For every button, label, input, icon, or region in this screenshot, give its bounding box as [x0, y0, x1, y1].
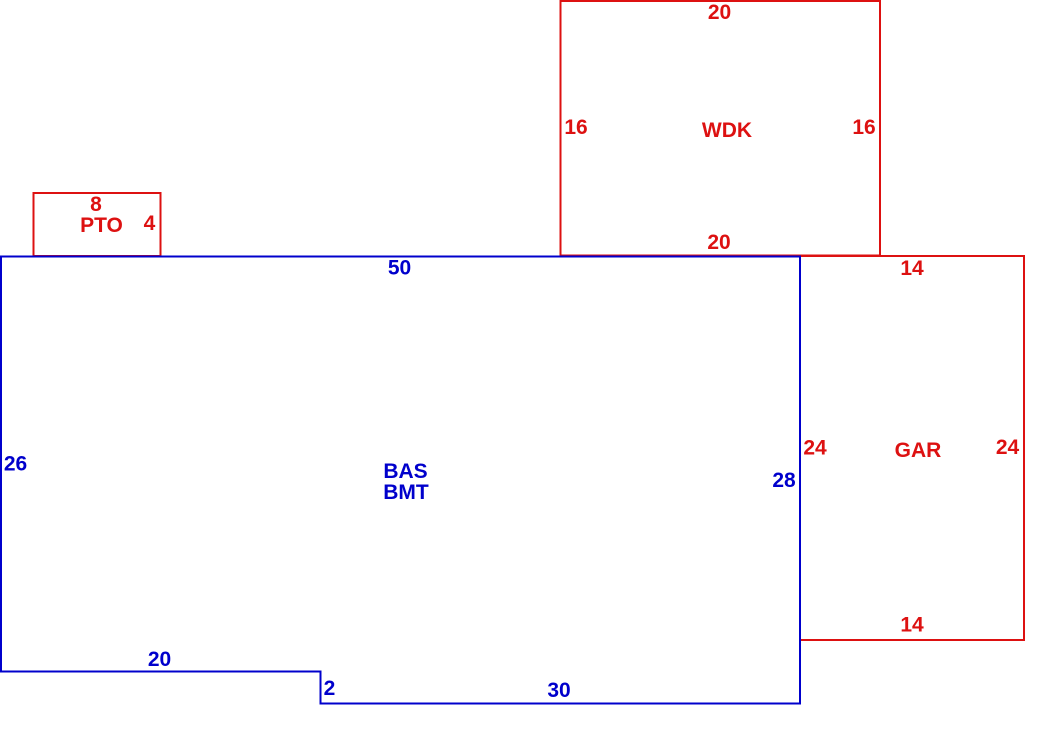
- svg-text:50: 50: [388, 257, 411, 280]
- svg-text:14: 14: [900, 257, 924, 280]
- svg-text:24: 24: [996, 436, 1020, 459]
- svg-text:20: 20: [148, 648, 171, 671]
- svg-text:14: 14: [900, 614, 924, 637]
- svg-text:20: 20: [708, 1, 731, 24]
- svg-text:PTO: PTO: [80, 214, 123, 237]
- svg-text:4: 4: [144, 212, 156, 235]
- svg-text:8: 8: [90, 193, 102, 216]
- svg-text:WDK: WDK: [702, 119, 752, 142]
- svg-text:28: 28: [772, 469, 796, 492]
- svg-text:24: 24: [803, 437, 827, 460]
- svg-text:2: 2: [324, 677, 336, 700]
- svg-text:GAR: GAR: [895, 439, 942, 462]
- svg-text:BAS: BAS: [383, 460, 427, 483]
- svg-text:16: 16: [852, 116, 875, 139]
- svg-text:26: 26: [4, 453, 27, 476]
- svg-text:20: 20: [707, 231, 730, 254]
- svg-text:16: 16: [564, 116, 587, 139]
- svg-text:30: 30: [547, 679, 570, 702]
- svg-text:BMT: BMT: [383, 481, 429, 504]
